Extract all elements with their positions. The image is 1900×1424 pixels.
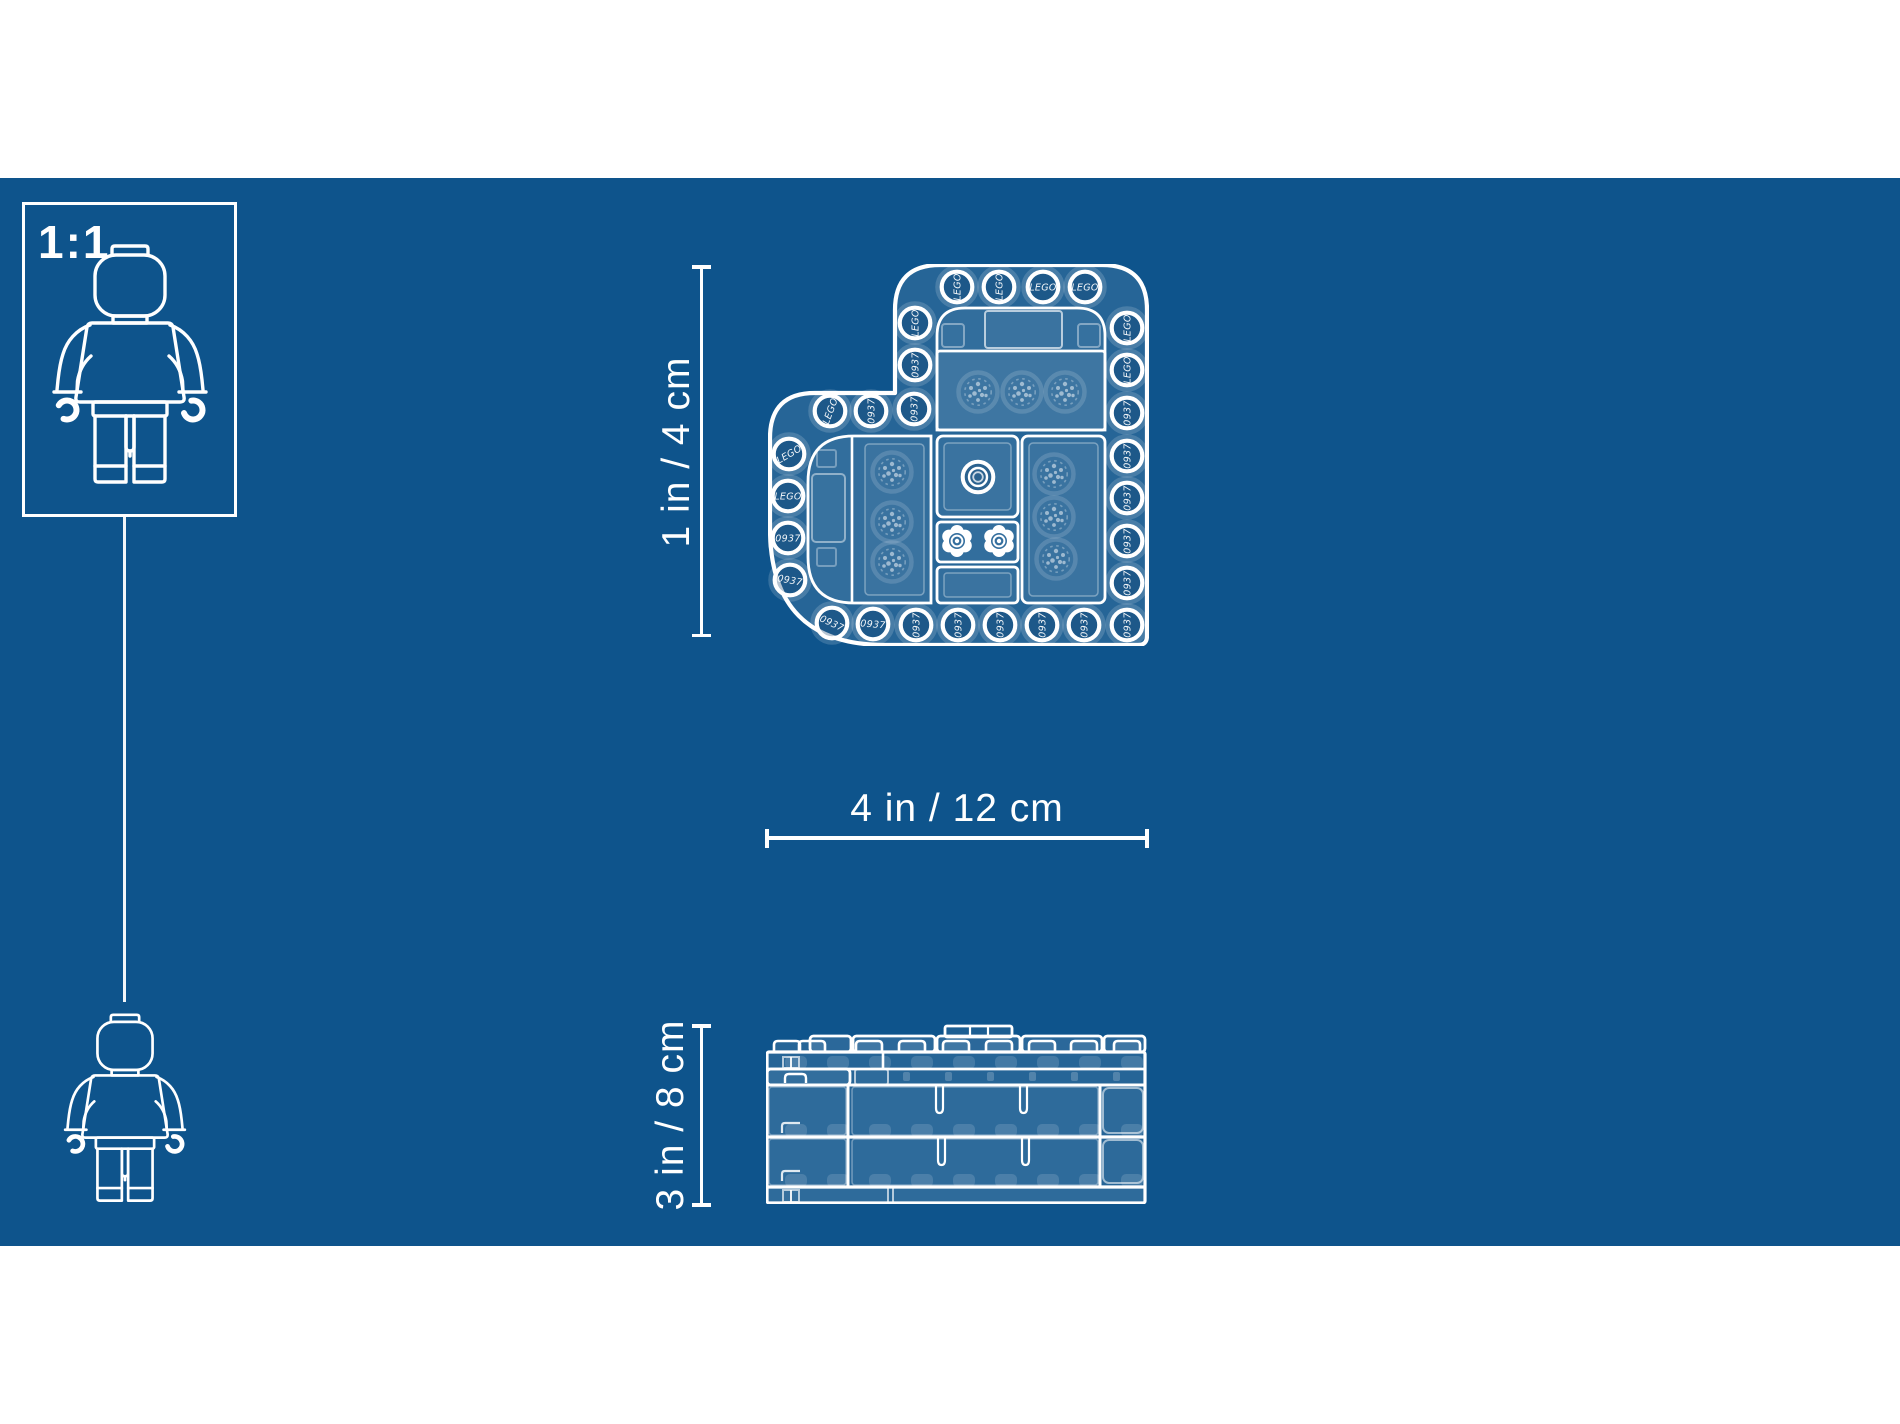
heart-box-side-view-diagram (766, 1024, 1147, 1204)
dimension-cap (765, 829, 769, 848)
instruction-page: 1:1 (0, 0, 1900, 1424)
dimension-label-box-height: 3 in / 8 cm (648, 915, 694, 1315)
minifigure-outline-icon-large (50, 244, 210, 486)
dimension-cap (692, 1203, 711, 1207)
svg-text:0937: 0937 (910, 352, 921, 377)
svg-text:0937: 0937 (953, 612, 964, 637)
blueprint-canvas: 1:1 (0, 178, 1900, 1246)
dimension-line (767, 836, 1147, 840)
heart-box-top-view-diagram: LEGOLEGOLEGOLEGOLEGO09370937LEGO0937LEGO… (768, 264, 1149, 646)
svg-text:0937: 0937 (911, 612, 922, 637)
svg-text:LEGO: LEGO (952, 273, 963, 301)
svg-text:0937: 0937 (1122, 612, 1133, 637)
dimension-line (700, 267, 704, 635)
svg-text:0937: 0937 (775, 533, 800, 544)
svg-text:0937: 0937 (1122, 485, 1133, 510)
dimension-label-heart-height: 1 in / 4 cm (654, 252, 700, 652)
svg-text:0937: 0937 (1122, 570, 1133, 595)
center-stud-icon (963, 462, 994, 493)
svg-text:LEGO: LEGO (1071, 282, 1099, 293)
svg-text:LEGO: LEGO (1122, 356, 1133, 384)
svg-text:0937: 0937 (1122, 400, 1133, 425)
svg-text:LEGO: LEGO (994, 273, 1005, 301)
svg-text:0937: 0937 (909, 396, 920, 421)
scale-connector-line (123, 514, 126, 1002)
svg-text:0937: 0937 (1037, 612, 1048, 637)
dimension-line (700, 1026, 704, 1205)
svg-text:0937: 0937 (860, 618, 886, 631)
svg-text:LEGO: LEGO (1029, 282, 1057, 293)
dimension-cap (692, 1024, 711, 1028)
svg-text:0937: 0937 (866, 398, 877, 423)
dimension-label-heart-width: 4 in / 12 cm (757, 787, 1157, 831)
svg-text:0937: 0937 (1122, 528, 1133, 553)
minifigure-outline-icon-small (62, 1013, 188, 1204)
dimension-cap (1145, 829, 1149, 848)
svg-text:0937: 0937 (995, 612, 1006, 637)
svg-text:0937: 0937 (1122, 443, 1133, 468)
svg-text:LEGO: LEGO (910, 309, 921, 337)
svg-text:LEGO: LEGO (1122, 314, 1133, 342)
svg-text:0937: 0937 (1079, 612, 1090, 637)
svg-text:LEGO: LEGO (774, 491, 802, 502)
